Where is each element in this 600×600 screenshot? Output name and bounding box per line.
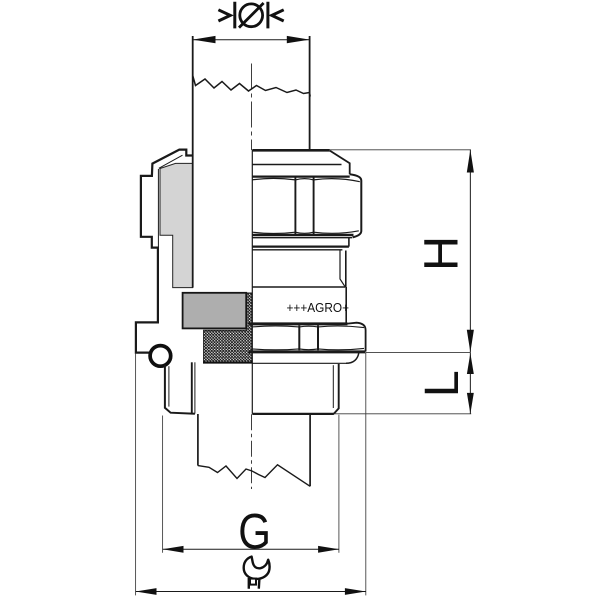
svg-text:+++AGRO+: +++AGRO+ bbox=[287, 301, 350, 315]
svg-text:H: H bbox=[415, 236, 469, 271]
svg-text:G: G bbox=[238, 503, 271, 559]
svg-text:L: L bbox=[415, 370, 469, 397]
